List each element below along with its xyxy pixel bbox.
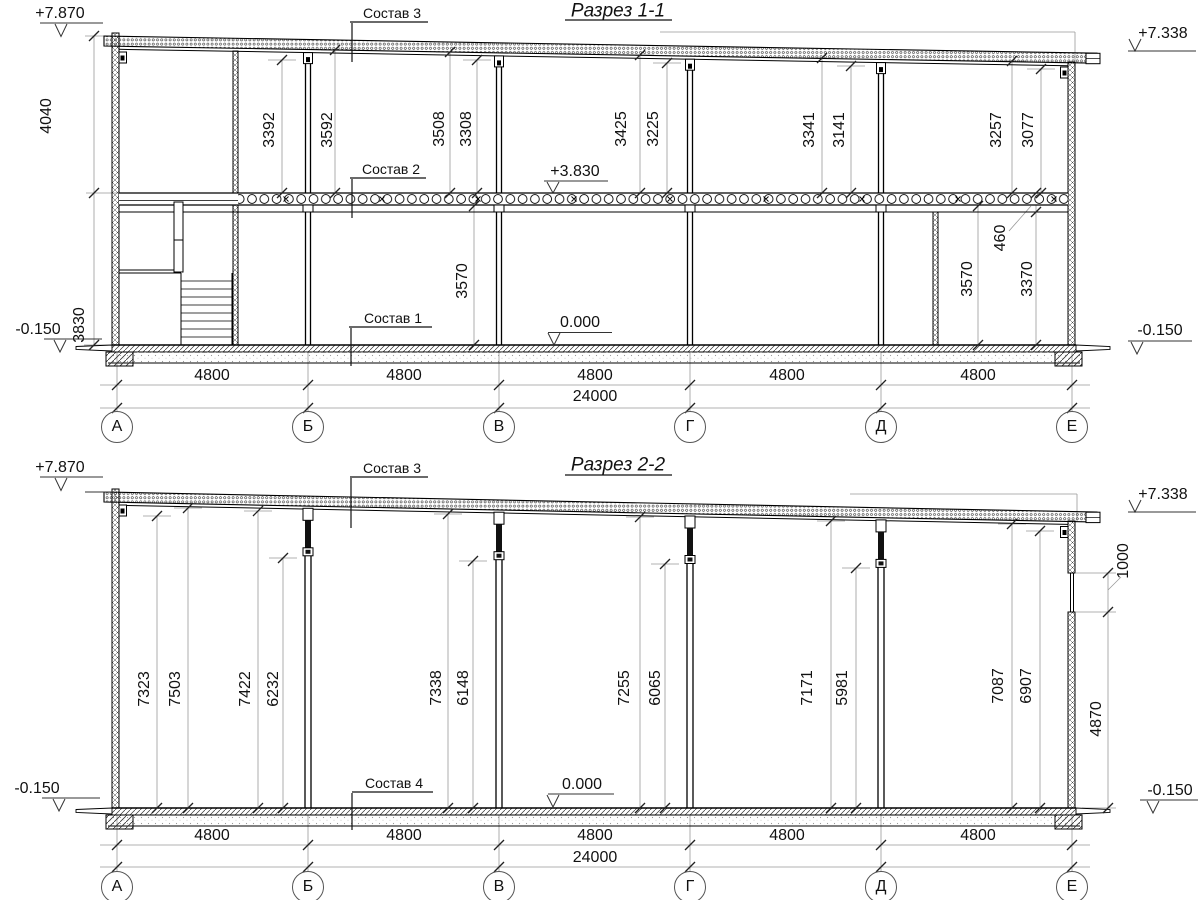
dim-label: 3225 xyxy=(646,111,662,147)
dim-label: 7087 xyxy=(991,668,1007,704)
axis-bubble-label: Е xyxy=(1067,419,1078,435)
composition-label: Состав 3 xyxy=(363,6,421,20)
total-dim-label: 24000 xyxy=(573,389,618,405)
dim-label: 3570 xyxy=(455,263,471,299)
elevation-mark: +7.338 xyxy=(1138,26,1187,42)
dim-label: 4800 xyxy=(194,368,230,384)
axis-bubble-label: Д xyxy=(876,879,887,895)
dim-label: 3308 xyxy=(459,111,475,147)
dim-label: 6907 xyxy=(1019,668,1035,704)
dim-label: 3370 xyxy=(1020,261,1036,297)
dim-label: 4800 xyxy=(577,368,613,384)
dim-label: 3257 xyxy=(989,112,1005,148)
dim-label: 3077 xyxy=(1021,112,1037,148)
axis-bubble-label: Б xyxy=(303,419,314,435)
section-title: Разрез 2-2 xyxy=(571,456,665,475)
elevation-mark: +7.870 xyxy=(35,6,84,22)
dim-label: 4800 xyxy=(386,368,422,384)
dim-label: 7422 xyxy=(238,671,254,707)
elevation-mark: -0.150 xyxy=(15,322,60,338)
dim-label: 3392 xyxy=(262,112,278,148)
dim-label: 7171 xyxy=(800,670,816,706)
elevation-mark: -0.150 xyxy=(14,781,59,797)
dim-label: 3141 xyxy=(832,112,848,148)
dim-label: 3570 xyxy=(960,261,976,297)
axis-bubble-label: В xyxy=(494,879,505,895)
dim-label: 460 xyxy=(993,225,1009,252)
dim-label: 5981 xyxy=(835,670,851,706)
roof-slab xyxy=(104,492,1097,522)
axis-bubble-label: Г xyxy=(686,419,695,435)
composition-label: Состав 4 xyxy=(365,776,423,790)
composition-label: Состав 3 xyxy=(363,461,421,475)
wall-axis-a xyxy=(112,489,119,808)
composition-label: Состав 1 xyxy=(364,311,422,325)
wall-axis-e-upper xyxy=(1068,521,1075,573)
dim-label: 6148 xyxy=(456,670,472,706)
wall-axis-a xyxy=(112,33,119,345)
axis-bubble-label: А xyxy=(112,419,123,435)
dim-label: 3592 xyxy=(320,112,336,148)
wall-axis-e xyxy=(1068,62,1075,345)
roof-slab xyxy=(104,36,1097,63)
ground-floor xyxy=(112,345,1076,352)
dim-label: 4800 xyxy=(577,828,613,844)
dim-label: 3830 xyxy=(72,307,88,343)
axis-bubble-label: Г xyxy=(686,879,695,895)
drawing-canvas: Разрез 1-1 Состав 3 Состав 2 Состав 1 +7… xyxy=(0,0,1200,900)
dim-label: 4870 xyxy=(1089,701,1105,737)
partition-wall xyxy=(933,212,938,345)
elevation-mark: +7.870 xyxy=(35,460,84,476)
dim-label: 1000 xyxy=(1116,543,1132,579)
dim-label: 7338 xyxy=(429,670,445,706)
dim-label: 4800 xyxy=(194,828,230,844)
dim-label: 3341 xyxy=(802,112,818,148)
elevation-mark: -0.150 xyxy=(1137,323,1182,339)
staircase xyxy=(119,202,232,345)
axis-bubbles xyxy=(102,412,1088,443)
axis-bubble-label: Б xyxy=(303,879,314,895)
dim-label: 6232 xyxy=(266,671,282,707)
dim-label: 7323 xyxy=(137,671,153,707)
dim-label: 4800 xyxy=(960,368,996,384)
axis-bubbles xyxy=(102,872,1088,900)
total-dim-label: 24000 xyxy=(573,850,618,866)
axis-bubble-label: А xyxy=(112,879,123,895)
elevation-mark: 0.000 xyxy=(562,777,602,793)
dim-label: 7255 xyxy=(617,670,633,706)
dim-label: 4040 xyxy=(39,98,55,134)
dim-label: 3425 xyxy=(614,111,630,147)
section-title: Разрез 1-1 xyxy=(571,2,665,21)
axis-bubble-label: Д xyxy=(876,419,887,435)
axis-bubble-label: В xyxy=(494,419,505,435)
dim-label: 6065 xyxy=(648,670,664,706)
dim-label: 4800 xyxy=(386,828,422,844)
axis-bubble-label: Е xyxy=(1067,879,1078,895)
dim-label: 3508 xyxy=(432,111,448,147)
dim-label: 7503 xyxy=(168,671,184,707)
hall-columns xyxy=(303,508,886,808)
dim-label: 4800 xyxy=(769,368,805,384)
elevation-mark: +3.830 xyxy=(550,164,599,180)
elevation-mark: +7.338 xyxy=(1138,487,1187,503)
dim-label: 4800 xyxy=(960,828,996,844)
elevation-mark: 0.000 xyxy=(560,315,600,331)
wall-axis-e-lower xyxy=(1068,612,1075,808)
elevation-mark: -0.150 xyxy=(1147,783,1192,799)
composition-label: Состав 2 xyxy=(362,162,420,176)
dim-label: 4800 xyxy=(769,828,805,844)
